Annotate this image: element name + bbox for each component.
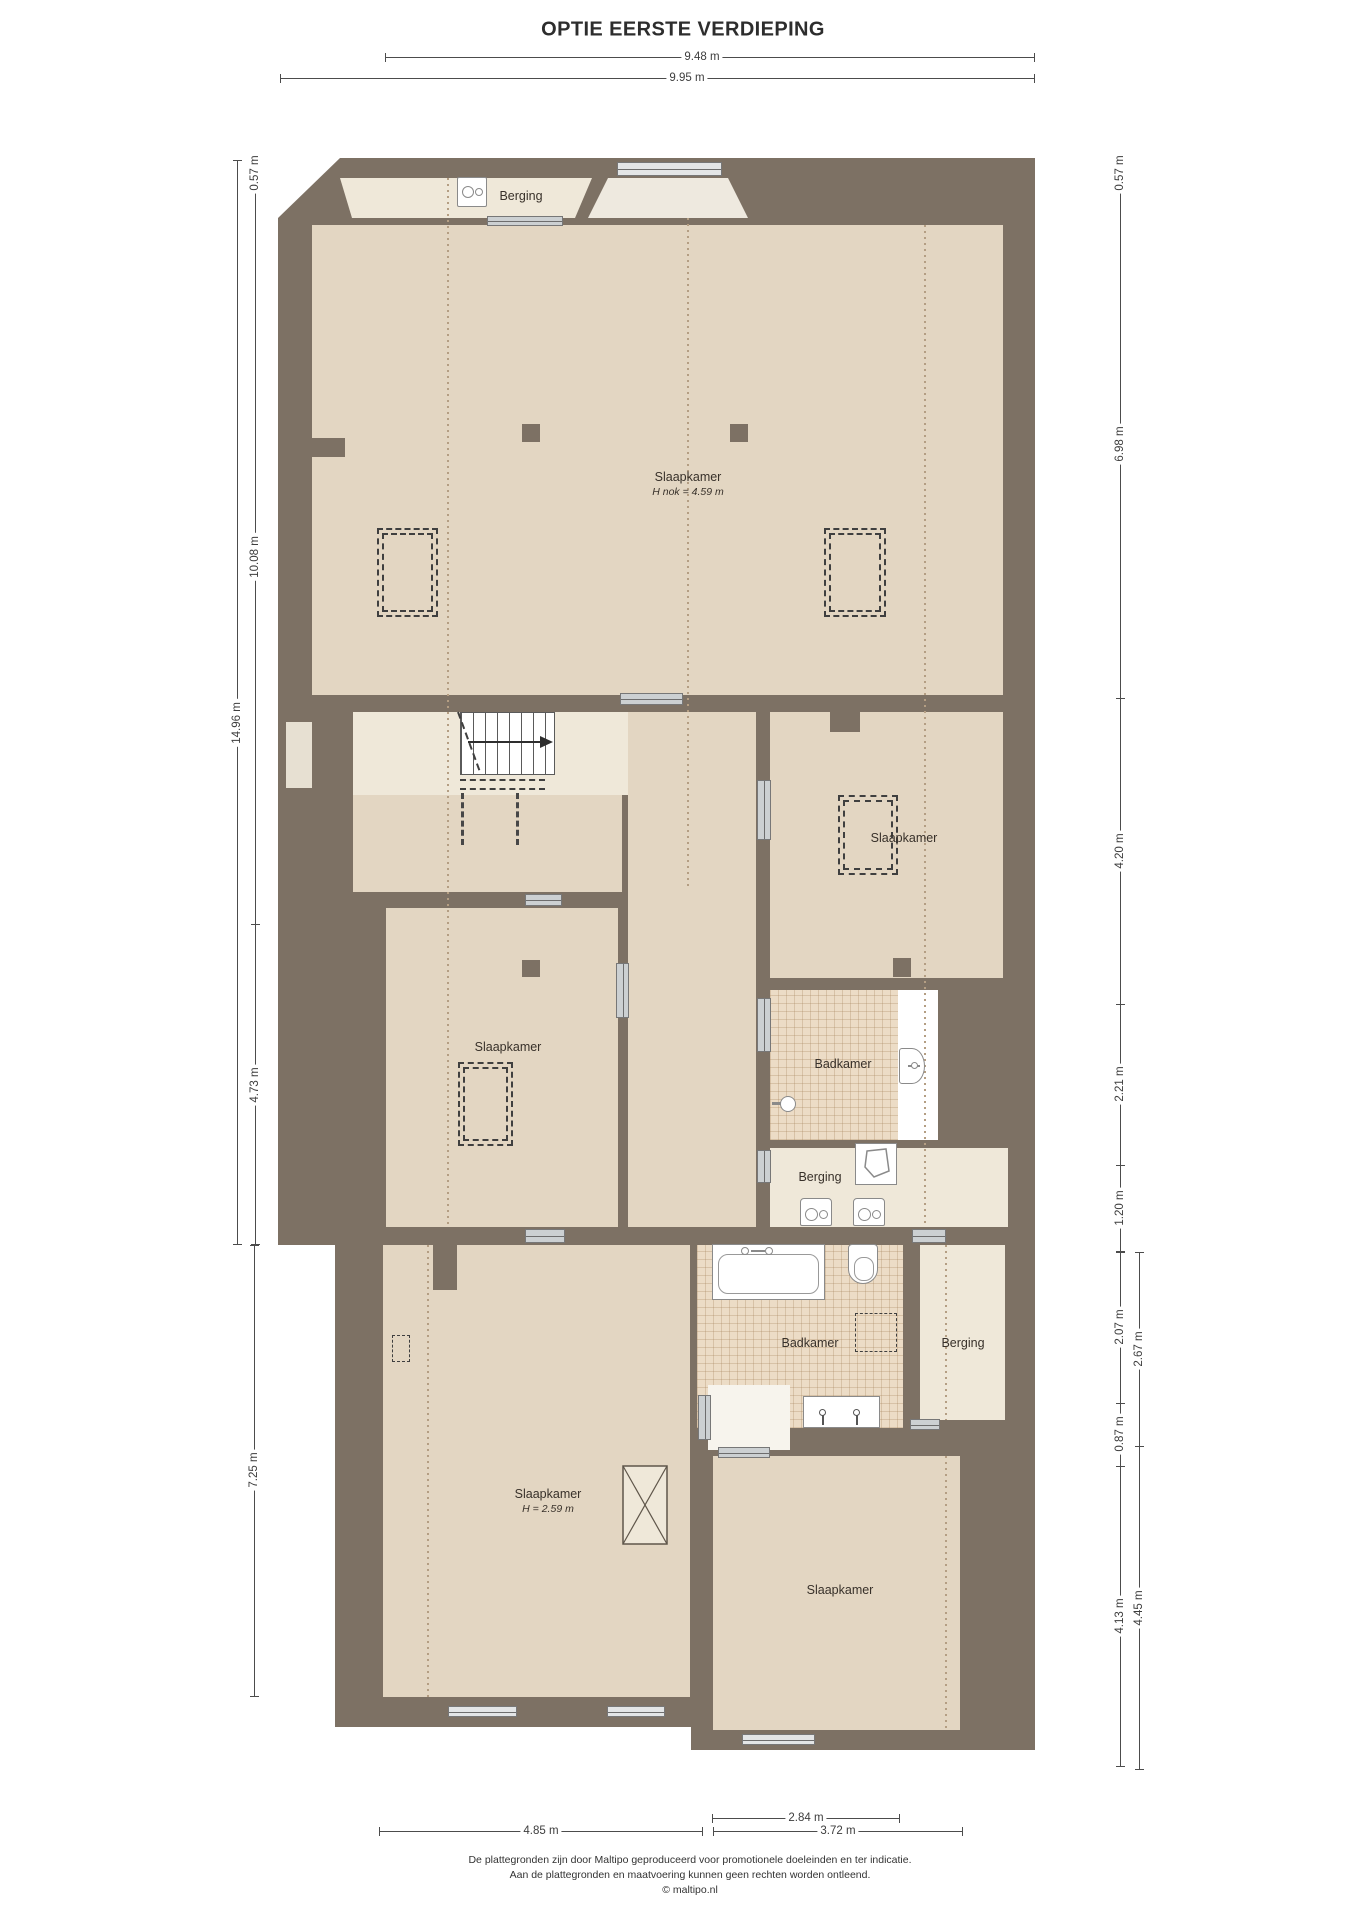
door bbox=[757, 998, 771, 1052]
floor-slaapkamer-main bbox=[312, 225, 1003, 695]
window bbox=[607, 1706, 665, 1717]
dim-label: 9.48 m bbox=[681, 51, 722, 63]
toilet-icon bbox=[848, 1244, 878, 1284]
wall-niche bbox=[286, 722, 312, 788]
roof-window-dashed bbox=[824, 528, 886, 617]
wall-stub bbox=[830, 712, 860, 732]
sliding-door bbox=[757, 1150, 771, 1183]
door bbox=[698, 1395, 711, 1440]
page-title: OPTIE EERSTE VERDIEPING bbox=[541, 19, 825, 42]
dim-label: 4.73 m bbox=[249, 1064, 261, 1105]
floor-hall-lower bbox=[708, 1385, 790, 1450]
dim-label: 7.25 m bbox=[248, 1449, 260, 1490]
floor-hall-upper bbox=[353, 795, 622, 892]
dim-label: 0.57 m bbox=[249, 152, 261, 193]
window bbox=[617, 162, 722, 176]
dim-label: 4.85 m bbox=[520, 1825, 561, 1837]
sliding-door bbox=[525, 894, 562, 906]
room-height-note: H nok = 4.59 m bbox=[652, 486, 724, 498]
room-label-slaapkamer-mid-left: Slaapkamer bbox=[475, 1040, 542, 1054]
roof-dashed-line bbox=[516, 793, 519, 845]
door bbox=[718, 1447, 770, 1458]
roof-window-dashed-small bbox=[392, 1335, 410, 1362]
dim-label: 9.95 m bbox=[666, 72, 707, 84]
dim-label: 2.21 m bbox=[1114, 1063, 1126, 1104]
dim-label: 0.57 m bbox=[1114, 152, 1126, 193]
room-label-badkamer-lower: Badkamer bbox=[782, 1336, 839, 1350]
roof-window-dashed bbox=[377, 528, 438, 617]
footer-copyright: © maltipo.nl bbox=[662, 1884, 718, 1896]
room-label-slaapkamer-right: Slaapkamer bbox=[871, 831, 938, 845]
stairs-arrow-icon bbox=[540, 736, 553, 748]
footer-disclaimer-line1: De plattegronden zijn door Maltipo gepro… bbox=[468, 1854, 911, 1866]
roofline-dotted bbox=[945, 1456, 947, 1730]
stairs-dashed-strip bbox=[460, 779, 545, 790]
sliding-door bbox=[616, 963, 629, 1018]
dim-line-top-outer bbox=[280, 78, 1035, 79]
window bbox=[448, 1706, 517, 1717]
basin-icon bbox=[855, 1143, 897, 1185]
floor-entry-dormer bbox=[588, 178, 748, 218]
dim-label: 4.45 m bbox=[1133, 1587, 1145, 1628]
sliding-door bbox=[620, 693, 683, 705]
window bbox=[742, 1734, 815, 1745]
vanity-icon bbox=[803, 1396, 880, 1428]
dim-label: 10.08 m bbox=[249, 533, 261, 581]
washer-icon bbox=[800, 1198, 832, 1226]
dim-label: 0.87 m bbox=[1114, 1413, 1126, 1454]
column bbox=[522, 960, 540, 977]
footer-disclaimer-line2: Aan de plattegronden en maatvoering kunn… bbox=[510, 1869, 871, 1881]
boiler-icon bbox=[457, 177, 487, 207]
dim-label: 2.07 m bbox=[1114, 1306, 1126, 1347]
shower-area-dashed bbox=[855, 1313, 897, 1352]
column bbox=[522, 424, 540, 442]
roofline-dotted bbox=[427, 1245, 429, 1697]
roof-window-dashed bbox=[458, 1062, 513, 1146]
dim-label: 2.84 m bbox=[785, 1812, 826, 1824]
washer-icon bbox=[853, 1198, 885, 1226]
floor-corridor bbox=[628, 712, 756, 1227]
dim-label: 6.98 m bbox=[1114, 423, 1126, 464]
dim-label: 4.20 m bbox=[1114, 830, 1126, 871]
roof-dashed-line bbox=[461, 793, 464, 845]
room-label-berging-mid: Berging bbox=[798, 1170, 841, 1184]
dim-label: 3.72 m bbox=[817, 1825, 858, 1837]
sink-icon bbox=[899, 1048, 925, 1084]
dim-label: 1.20 m bbox=[1114, 1187, 1126, 1228]
sliding-door bbox=[757, 780, 771, 840]
dim-label: 2.67 m bbox=[1133, 1328, 1145, 1369]
room-label-berging-top: Berging bbox=[499, 189, 542, 203]
sliding-door bbox=[487, 216, 563, 226]
dim-label: 4.13 m bbox=[1114, 1595, 1126, 1636]
roofline-dotted bbox=[447, 178, 449, 1227]
door bbox=[910, 1419, 940, 1430]
stairs-headroom-line bbox=[450, 705, 488, 779]
dim-label: 14.96 m bbox=[231, 699, 243, 747]
room-height-note: H = 2.59 m bbox=[522, 1503, 574, 1515]
bathtub-icon bbox=[712, 1244, 825, 1300]
wall-stub bbox=[278, 438, 345, 457]
column bbox=[893, 958, 911, 977]
room-label-berging-lower: Berging bbox=[941, 1336, 984, 1350]
roofline-dotted bbox=[945, 1245, 947, 1420]
sliding-door bbox=[525, 1229, 565, 1243]
wall-stub bbox=[433, 1245, 457, 1290]
shower-icon bbox=[780, 1096, 796, 1112]
floor-berging-lower bbox=[920, 1245, 1005, 1420]
room-label-slaapkamer-bottom-left: Slaapkamer bbox=[515, 1487, 582, 1501]
roofline-dotted bbox=[687, 218, 689, 890]
room-label-slaapkamer-main: Slaapkamer bbox=[655, 470, 722, 484]
column bbox=[730, 424, 748, 442]
roofline-dotted bbox=[924, 225, 926, 1227]
void-x-box bbox=[622, 1465, 668, 1545]
door bbox=[912, 1229, 946, 1243]
room-label-slaapkamer-bottom-right: Slaapkamer bbox=[807, 1583, 874, 1597]
room-label-badkamer-mid: Badkamer bbox=[815, 1057, 872, 1071]
floorplan-canvas: OPTIE EERSTE VERDIEPING 9.48 m 9.95 m 14… bbox=[0, 0, 1358, 1920]
wall-trim bbox=[335, 1727, 691, 1750]
